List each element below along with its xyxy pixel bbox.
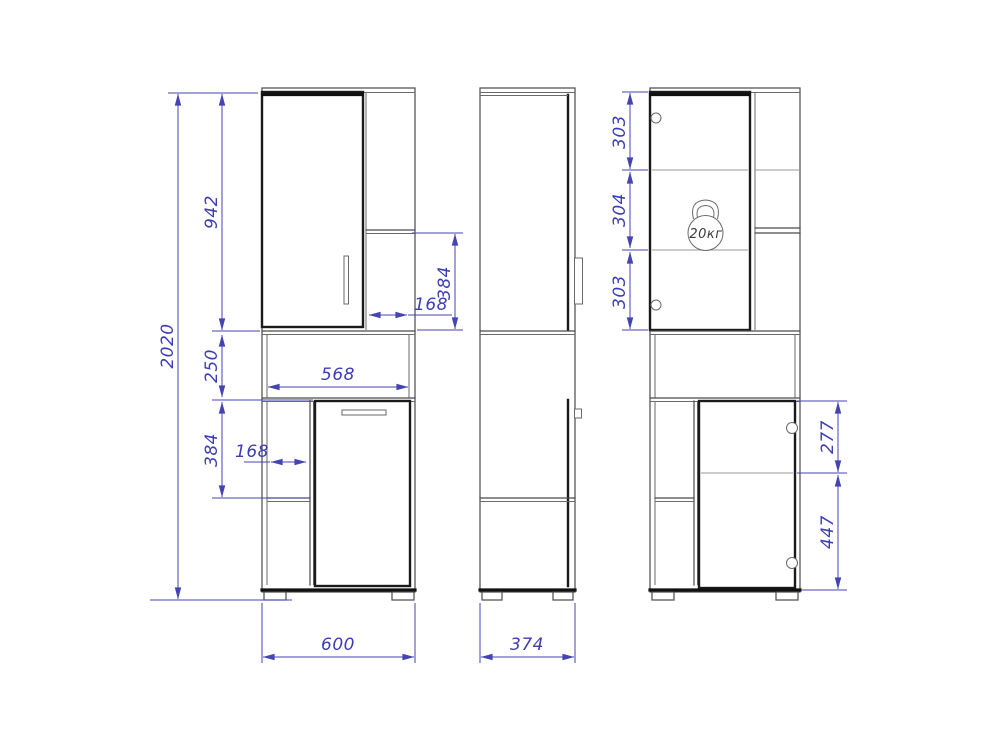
dim-top-shelf-label: 303 — [610, 115, 630, 149]
max-load-label: 20кг — [689, 227, 722, 242]
front-lower-door — [315, 401, 410, 586]
side-lower-handle — [575, 409, 582, 418]
dim-upper-height-label: 942 — [202, 195, 222, 229]
dim-middle-niche-label: 250 — [202, 349, 222, 383]
dim-upper-door-section-label: 277 — [818, 420, 838, 454]
side-carcass — [480, 88, 575, 592]
side-right-foot — [553, 592, 573, 600]
drawing-canvas: 20кг — [0, 0, 1000, 750]
front-lower-door-handle — [342, 410, 386, 415]
dim-inner-width-label: 568 — [321, 365, 355, 385]
dim-lower-door-section-label: 447 — [818, 515, 838, 549]
interior-lower-door — [699, 401, 795, 588]
side-upper-handle — [575, 258, 583, 304]
interior-right-foot — [776, 592, 798, 600]
side-view — [480, 88, 583, 600]
dim-depth-label: 374 — [510, 635, 544, 655]
dim-middle-shelf-label: 304 — [610, 193, 630, 227]
kettlebell-icon: 20кг — [688, 200, 723, 251]
interior-view: 20кг — [650, 88, 800, 600]
interior-carcass — [650, 88, 800, 592]
hinge-icon-lower-top — [787, 423, 798, 434]
front-right-foot — [392, 592, 414, 600]
front-carcass — [262, 88, 415, 592]
dim-bottom-shelf-label: 303 — [610, 275, 630, 309]
dimensions-side: 374 — [480, 603, 575, 663]
dimensions-interior: 303 304 303 277 447 — [610, 92, 847, 590]
dim-overall-width-label: 600 — [321, 635, 355, 655]
dim-lower-niche-width-label: 168 — [235, 442, 269, 462]
hinge-icon-bottom — [651, 300, 661, 310]
interior-left-foot — [652, 592, 674, 600]
cabinet-drawing: 20кг — [0, 0, 1000, 750]
interior-glass-door — [650, 92, 750, 330]
dim-overall-height-label: 2020 — [158, 323, 178, 368]
hinge-icon-top — [651, 113, 661, 123]
dim-upper-niche-height-label: 384 — [435, 266, 455, 300]
hinge-icon-lower-bottom — [787, 558, 798, 569]
side-left-foot — [482, 592, 502, 600]
dimensions-front: 2020 942 250 384 168 568 168 384 600 — [150, 93, 463, 663]
front-view — [262, 88, 415, 600]
front-left-foot — [264, 592, 286, 600]
front-upper-door-handle — [344, 256, 349, 304]
dim-lower-niche-height-label: 384 — [202, 433, 222, 467]
